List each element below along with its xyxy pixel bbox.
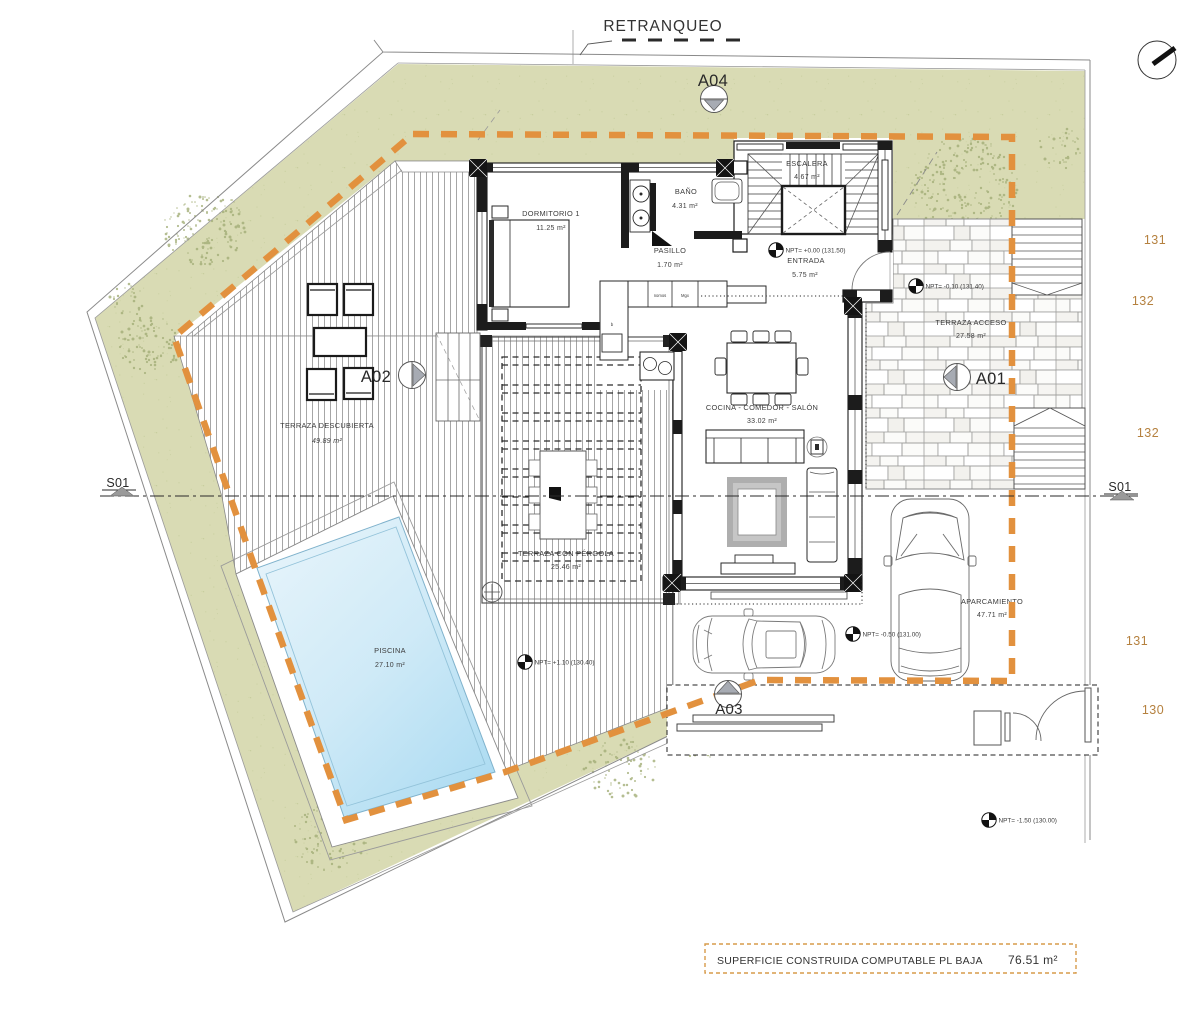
svg-text:NPT= +0.00 (131.50): NPT= +0.00 (131.50)	[786, 248, 846, 255]
svg-text:47.71 m²: 47.71 m²	[977, 612, 1007, 619]
svg-text:1.70 m²: 1.70 m²	[657, 262, 683, 269]
svg-text:COCINA - COMEDOR - SALÓN: COCINA - COMEDOR - SALÓN	[706, 403, 818, 412]
svg-text:4.31 m²: 4.31 m²	[672, 203, 698, 210]
svg-text:NPT= +1.10 (130.40): NPT= +1.10 (130.40)	[535, 660, 595, 667]
svg-text:DORMITORIO 1: DORMITORIO 1	[522, 209, 580, 218]
svg-text:11.25 m²: 11.25 m²	[536, 225, 566, 232]
svg-text:TERRAZA CON PÉRGOLA: TERRAZA CON PÉRGOLA	[518, 549, 614, 558]
svg-text:Mgx: Mgx	[681, 293, 690, 298]
svg-text:TERRAZA ACCESO: TERRAZA ACCESO	[935, 318, 1006, 327]
svg-text:131: 131	[1126, 634, 1148, 648]
svg-text:132: 132	[1137, 426, 1159, 440]
svg-text:PASILLO: PASILLO	[654, 246, 686, 255]
svg-text:5.75 m²: 5.75 m²	[792, 272, 818, 279]
svg-text:A02: A02	[361, 368, 391, 386]
svg-text:BAÑO: BAÑO	[675, 187, 697, 196]
svg-text:S01: S01	[106, 476, 129, 490]
svg-text:4.67 m²: 4.67 m²	[794, 174, 820, 181]
svg-text:49.89 m²: 49.89 m²	[312, 438, 342, 445]
svg-text:ESCALERA: ESCALERA	[786, 159, 828, 168]
svg-text:76.51 m²: 76.51 m²	[1008, 953, 1058, 967]
svg-text:TERRAZA DESCUBIERTA: TERRAZA DESCUBIERTA	[280, 421, 374, 430]
svg-text:A03: A03	[715, 701, 743, 718]
svg-text:NPT= -0.50 (131.00): NPT= -0.50 (131.00)	[863, 632, 921, 639]
svg-text:SUPERFICIE CONSTRUIDA COMPUTAB: SUPERFICIE CONSTRUIDA COMPUTABLE PL BAJA	[717, 955, 983, 967]
svg-text:NPT= -0.10 (131.40): NPT= -0.10 (131.40)	[926, 284, 984, 291]
svg-text:A01: A01	[976, 370, 1006, 388]
svg-text:S01: S01	[1108, 480, 1131, 494]
svg-text:A04: A04	[698, 72, 728, 90]
svg-text:25.46 m²: 25.46 m²	[551, 564, 581, 571]
svg-text:27.58 m²: 27.58 m²	[956, 333, 986, 340]
svg-text:33.02 m²: 33.02 m²	[747, 418, 777, 425]
svg-text:nomos: nomos	[654, 293, 667, 298]
svg-text:27.10 m²: 27.10 m²	[375, 662, 405, 669]
svg-text:131: 131	[1144, 233, 1166, 247]
svg-text:130: 130	[1142, 703, 1164, 717]
svg-text:RETRANQUEO: RETRANQUEO	[603, 18, 722, 35]
svg-text:132: 132	[1132, 294, 1154, 308]
svg-text:ENTRADA: ENTRADA	[787, 256, 824, 265]
svg-text:NPT= -1.50 (130.00): NPT= -1.50 (130.00)	[999, 818, 1057, 825]
svg-text:PISCINA: PISCINA	[374, 646, 406, 655]
